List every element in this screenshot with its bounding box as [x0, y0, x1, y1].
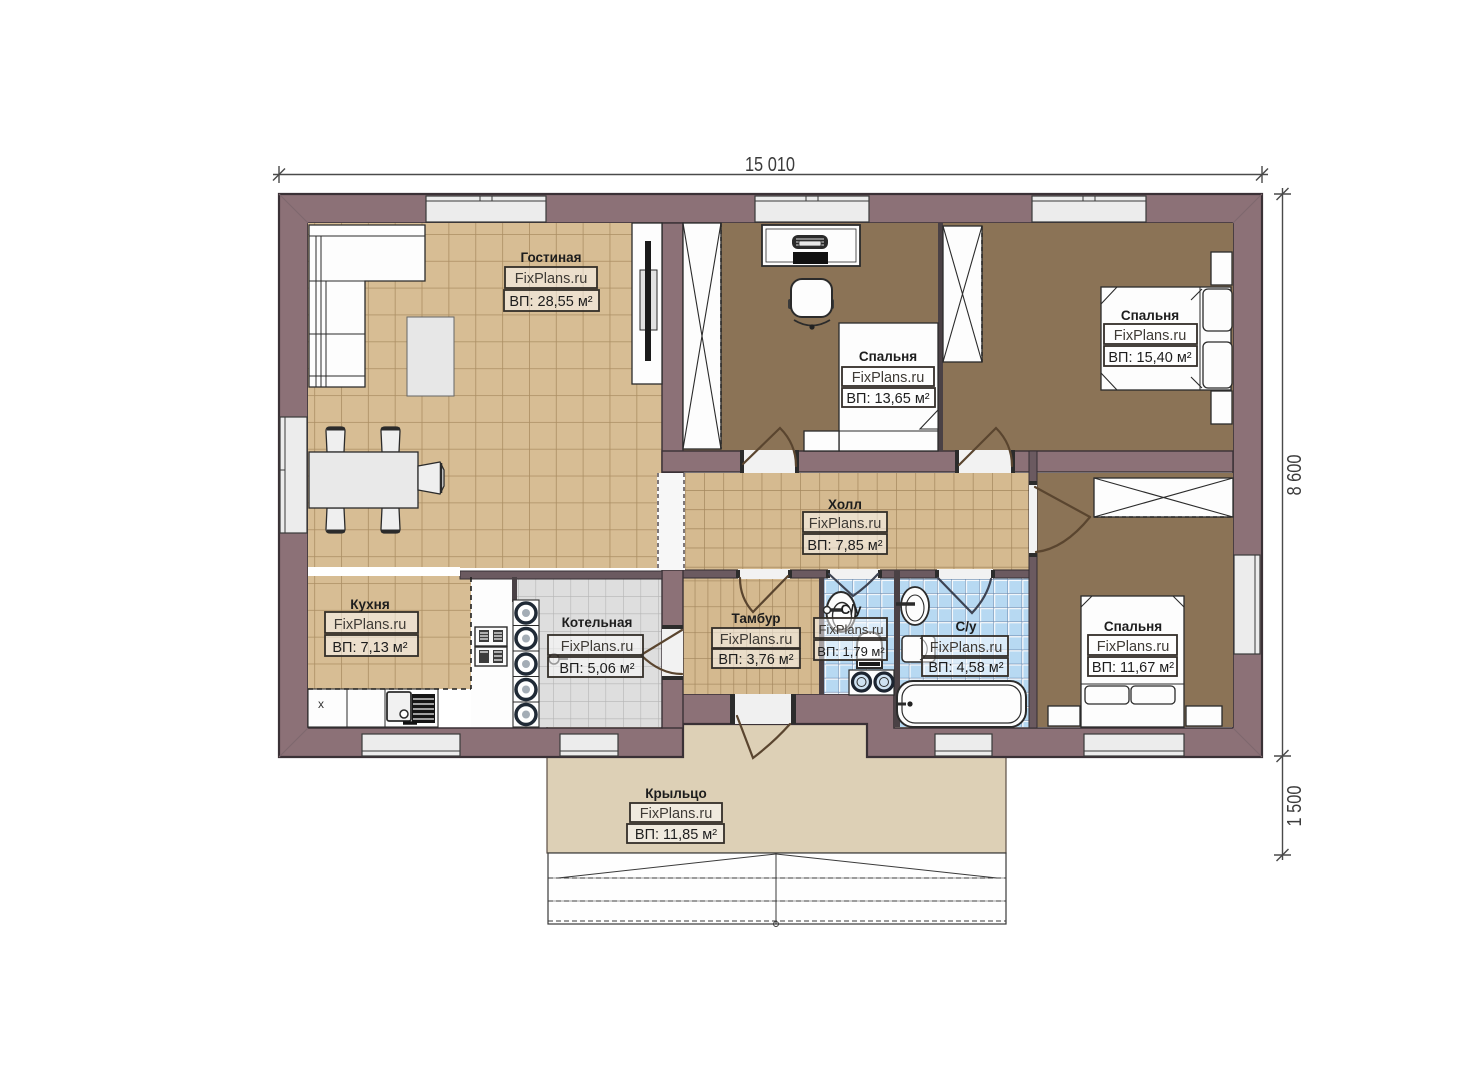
- svg-text:ВП: 28,55 м²: ВП: 28,55 м²: [509, 294, 592, 310]
- svg-text:Спальня: Спальня: [1104, 619, 1162, 634]
- svg-text:FixPlans.ru: FixPlans.ru: [809, 516, 882, 532]
- svg-text:FixPlans.ru: FixPlans.ru: [561, 639, 634, 655]
- svg-text:ВП: 7,13 м²: ВП: 7,13 м²: [332, 640, 407, 656]
- svg-text:FixPlans.ru: FixPlans.ru: [334, 617, 407, 633]
- svg-text:ВП: 5,06 м²: ВП: 5,06 м²: [559, 661, 634, 677]
- svg-text:FixPlans.ru: FixPlans.ru: [640, 806, 713, 822]
- svg-text:x: x: [318, 697, 324, 711]
- svg-text:FixPlans.ru: FixPlans.ru: [720, 632, 793, 648]
- svg-text:ВП: 13,65 м²: ВП: 13,65 м²: [846, 391, 929, 407]
- svg-text:15 010: 15 010: [745, 152, 795, 175]
- svg-text:1 500: 1 500: [1282, 786, 1305, 827]
- svg-text:FixPlans.ru: FixPlans.ru: [818, 622, 883, 637]
- svg-text:С/у: С/у: [840, 602, 862, 617]
- svg-text:FixPlans.ru: FixPlans.ru: [515, 271, 588, 287]
- svg-text:Спальня: Спальня: [859, 349, 917, 364]
- svg-text:FixPlans.ru: FixPlans.ru: [930, 640, 1003, 656]
- svg-text:ВП: 7,85 м²: ВП: 7,85 м²: [807, 538, 882, 554]
- svg-text:ВП: 3,76 м²: ВП: 3,76 м²: [718, 652, 793, 668]
- svg-text:ВП: 11,67 м²: ВП: 11,67 м²: [1092, 660, 1174, 676]
- svg-text:Гостиная: Гостиная: [520, 250, 581, 265]
- svg-text:Тамбур: Тамбур: [732, 611, 781, 626]
- svg-text:ВП: 15,40 м²: ВП: 15,40 м²: [1108, 350, 1191, 366]
- svg-text:FixPlans.ru: FixPlans.ru: [852, 370, 925, 386]
- svg-text:ВП: 11,85 м²: ВП: 11,85 м²: [635, 827, 717, 843]
- svg-text:ВП: 4,58 м²: ВП: 4,58 м²: [928, 660, 1003, 676]
- svg-text:Крыльцо: Крыльцо: [645, 786, 706, 801]
- svg-text:FixPlans.ru: FixPlans.ru: [1114, 328, 1187, 344]
- svg-text:Котельная: Котельная: [562, 615, 633, 630]
- svg-text:Кухня: Кухня: [350, 597, 389, 612]
- svg-text:С/у: С/у: [955, 619, 977, 634]
- svg-text:FixPlans.ru: FixPlans.ru: [1097, 639, 1170, 655]
- svg-text:ВП: 1,79 м²: ВП: 1,79 м²: [817, 644, 885, 659]
- svg-text:Холл: Холл: [828, 497, 862, 512]
- svg-text:8 600: 8 600: [1282, 455, 1305, 496]
- svg-text:Спальня: Спальня: [1121, 308, 1179, 323]
